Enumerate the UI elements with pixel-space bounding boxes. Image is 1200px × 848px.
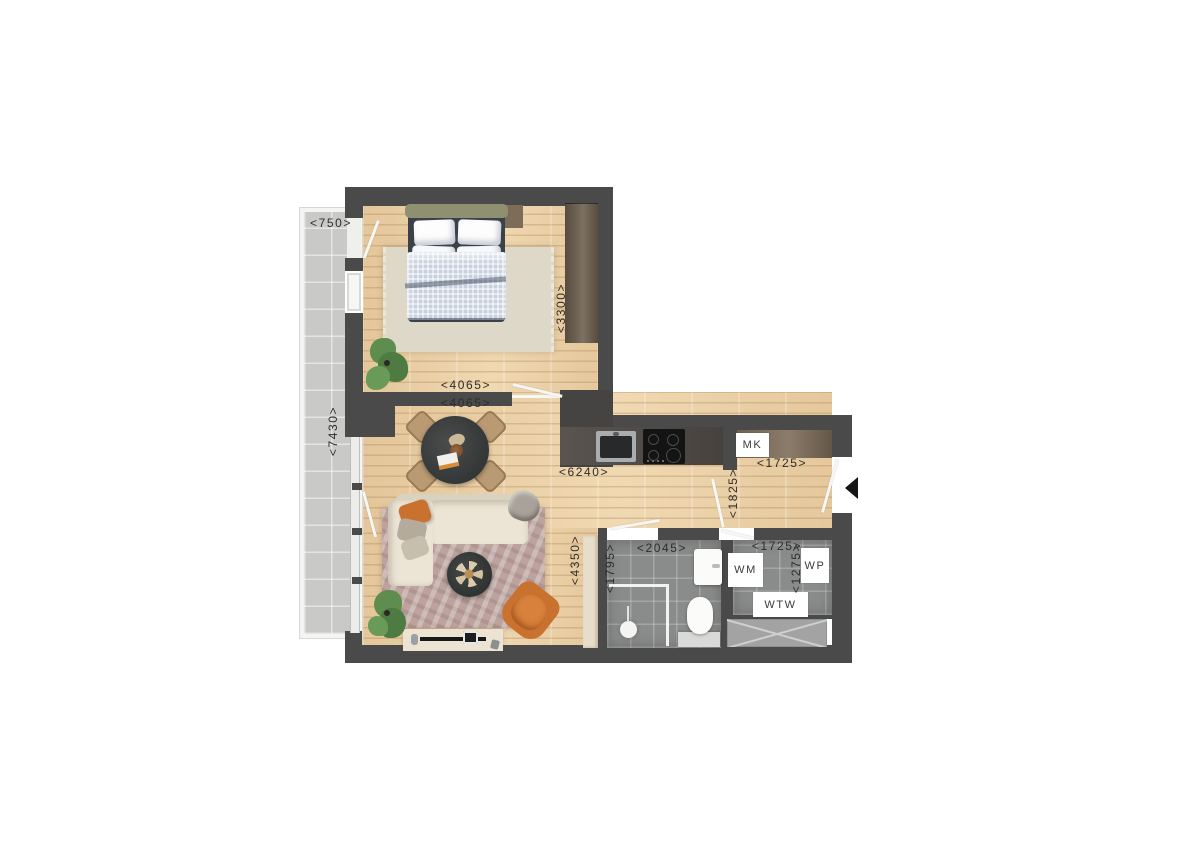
console-vase xyxy=(411,634,418,645)
glass-mullion-2 xyxy=(352,528,362,535)
plant-leaf xyxy=(368,616,388,636)
kitchen-sink xyxy=(596,431,636,462)
console-item xyxy=(490,639,500,650)
meter-cupboard-label: MK xyxy=(743,439,763,451)
dim-hall-width: <1725> xyxy=(757,457,807,469)
plant-stem xyxy=(384,360,390,366)
burner-4 xyxy=(666,448,681,463)
table-flower xyxy=(455,561,483,587)
dim-bedroom-width: <4065> xyxy=(441,379,491,391)
bathroom-door-opening xyxy=(607,528,658,540)
shower-edge-v xyxy=(666,584,669,646)
coffee-table xyxy=(447,552,492,597)
dim-living-depth: <4350> xyxy=(569,535,581,585)
dim-bedroom-depth: <3300> xyxy=(555,283,567,333)
living-plant xyxy=(368,590,406,650)
shower-drain xyxy=(620,621,637,638)
tv-console xyxy=(403,629,503,651)
bedroom-window xyxy=(345,271,363,313)
speaker-box xyxy=(463,631,478,644)
wall-pier-living xyxy=(345,404,395,437)
meter-cupboard-label-box: MK xyxy=(736,433,769,457)
wall-east xyxy=(832,415,852,663)
bedroom-plant xyxy=(366,336,406,398)
wall-south-west-stub xyxy=(345,631,362,663)
toilet-tank xyxy=(678,632,720,647)
bed-headboard xyxy=(405,204,508,218)
dim-balcony-width: <750> xyxy=(310,217,352,229)
dim-hall-depth: <1825> xyxy=(727,468,739,518)
dim-balcony-length: <7430> xyxy=(327,406,339,456)
burner-2 xyxy=(667,434,679,446)
kitchen-counter xyxy=(560,427,723,465)
wall-hall-west xyxy=(723,417,737,470)
floor-plan: MK WM WP WTW <750> <7430> <3300> <4065> … xyxy=(0,0,1200,848)
washing-machine-label: WM xyxy=(734,564,757,576)
glass-mullion-3 xyxy=(352,577,362,584)
sink-basin xyxy=(600,436,632,458)
burner-1 xyxy=(648,434,659,445)
pillow-2 xyxy=(458,219,502,245)
washing-machine-box: WM xyxy=(728,553,763,587)
table-notebook xyxy=(437,452,459,470)
wall-west-c xyxy=(345,313,363,405)
wardrobe xyxy=(565,203,598,343)
dim-bathroom-depth: <1795> xyxy=(604,543,616,593)
heat-pump-box: WP xyxy=(801,548,829,583)
glass-mullion-1 xyxy=(352,483,362,490)
living-cabinet xyxy=(583,535,598,648)
bed xyxy=(405,204,508,322)
stove-knobs xyxy=(647,460,665,462)
plant-stem xyxy=(384,610,390,616)
bathroom-sink xyxy=(694,549,722,585)
plant-leaf xyxy=(366,366,390,390)
heat-recovery-label: WTW xyxy=(764,599,796,611)
entry-arrow xyxy=(845,477,858,499)
living-glass-wall xyxy=(350,437,360,633)
sink-faucet xyxy=(613,432,619,436)
kitchen-stove xyxy=(643,429,685,464)
dim-bathroom-width: <2045> xyxy=(637,542,687,554)
dim-living-width: <4065> xyxy=(441,397,491,409)
heat-recovery-box: WTW xyxy=(753,592,808,617)
dim-living-kitchen-length: <6240> xyxy=(559,466,609,478)
sink-tap xyxy=(712,564,720,568)
shaft xyxy=(727,619,827,647)
heat-pump-label: WP xyxy=(805,560,826,572)
dim-utility-depth: <1275> xyxy=(790,543,802,593)
dining-table xyxy=(421,416,489,484)
pillow-1 xyxy=(414,219,456,245)
shower-edge-h xyxy=(609,584,668,587)
toilet-bowl xyxy=(687,597,713,634)
shower-arm xyxy=(627,606,629,622)
wall-west-b xyxy=(345,258,363,271)
